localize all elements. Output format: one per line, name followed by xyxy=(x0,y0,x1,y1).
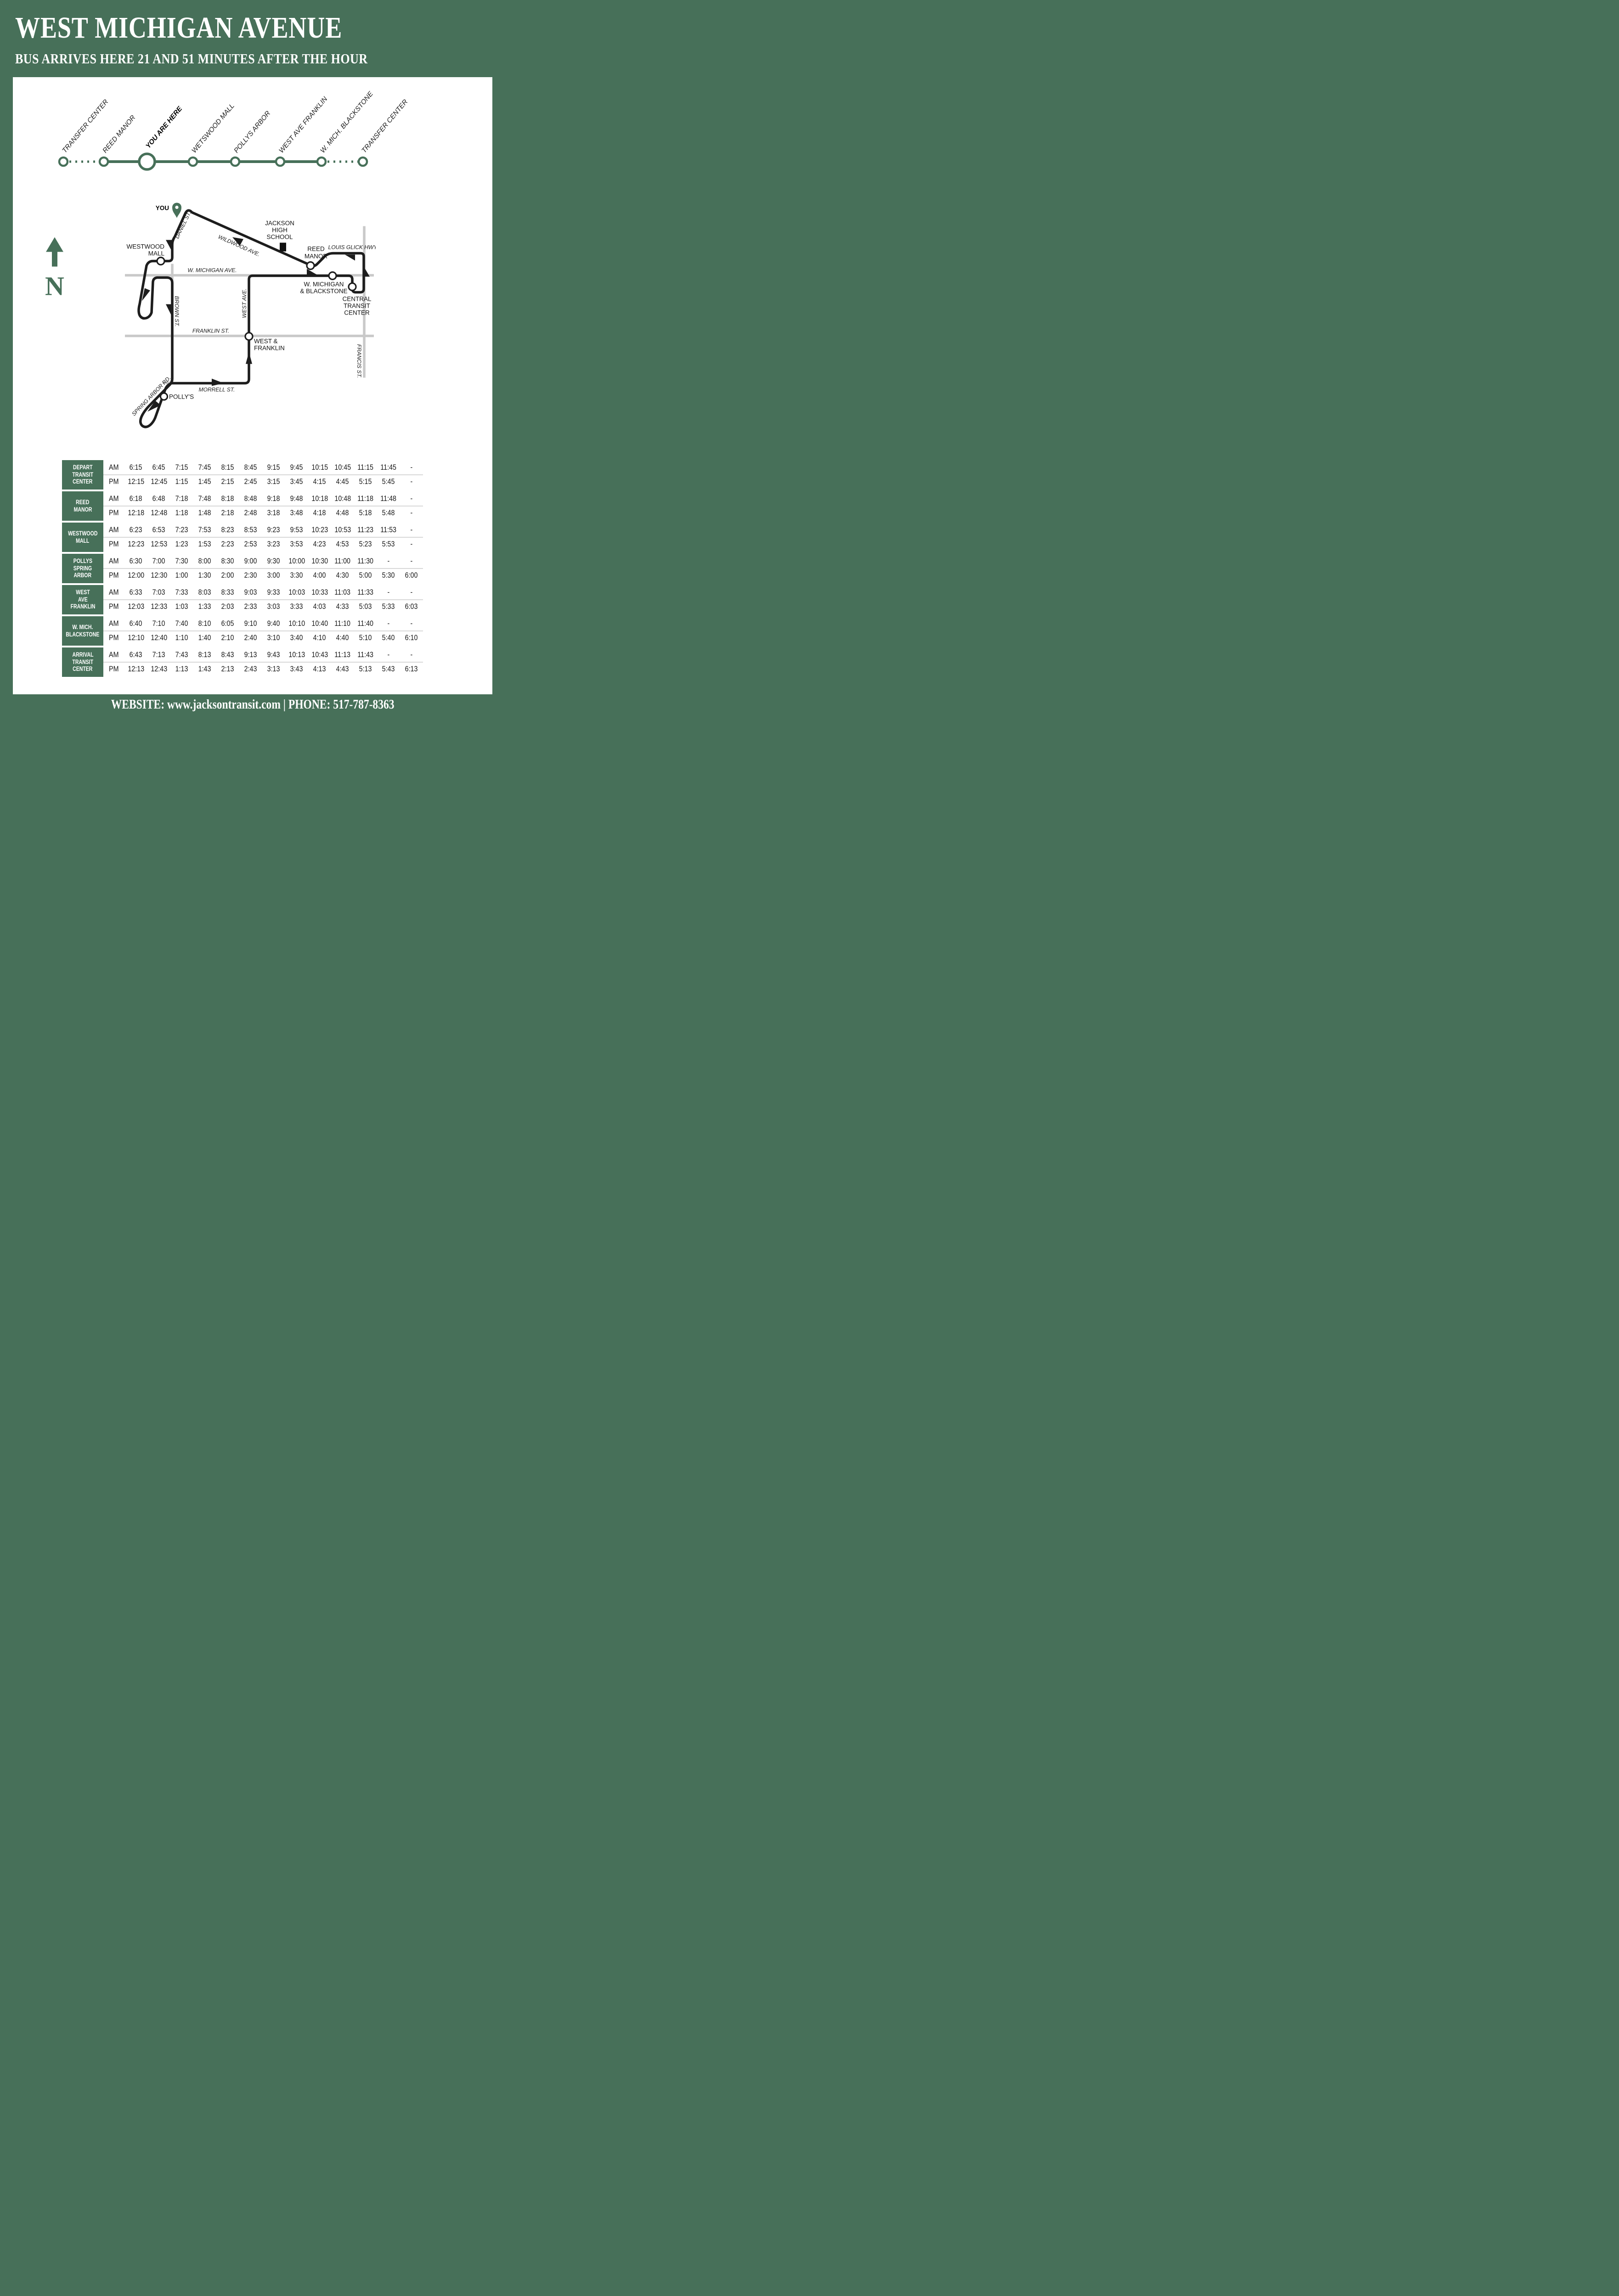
time-cell: 6:45 xyxy=(147,463,170,472)
time-cell: 2:13 xyxy=(216,664,239,674)
stop-wmich-blackstone xyxy=(329,272,336,280)
time-cell: 7:45 xyxy=(193,463,216,472)
period-label: PM xyxy=(103,664,124,674)
louis-glick-label: LOUIS GLICK HWY. xyxy=(328,244,376,251)
west-ave-label: WEST AVE. xyxy=(241,288,248,318)
arrow-daniel-south-icon xyxy=(166,240,172,252)
time-cell: 6:15 xyxy=(124,463,147,472)
west-franklin-label: FRANKLIN xyxy=(254,345,285,352)
time-cell: 10:00 xyxy=(285,557,308,566)
westwood-mall-label: MALL xyxy=(148,250,165,257)
time-cell: 5:30 xyxy=(377,571,400,580)
time-cell: 10:03 xyxy=(285,588,308,597)
time-cell: - xyxy=(377,619,400,628)
time-cell: 6:13 xyxy=(400,664,423,674)
time-cell: 8:30 xyxy=(216,557,239,566)
time-cell: 12:03 xyxy=(124,602,147,611)
time-cell: 3:45 xyxy=(285,477,308,486)
diagram-stop-label: YOU ARE HERE xyxy=(144,105,184,150)
time-cell: 7:48 xyxy=(193,494,216,503)
time-cell: 2:03 xyxy=(216,602,239,611)
time-cell: 3:33 xyxy=(285,602,308,611)
time-cell: 11:53 xyxy=(377,525,400,535)
time-cell: 5:13 xyxy=(354,664,377,674)
time-cell: 8:33 xyxy=(216,588,239,597)
am-pm-divider xyxy=(103,506,423,506)
time-cell: 11:45 xyxy=(377,463,400,472)
time-cell: 10:13 xyxy=(285,650,308,659)
time-cell: 2:30 xyxy=(239,571,262,580)
timetable-row-group: W. MICH.BLACKSTONEAM6:407:107:408:106:05… xyxy=(62,617,475,644)
time-cell: 7:23 xyxy=(170,525,193,535)
time-cell: 7:13 xyxy=(147,650,170,659)
time-cell: 9:00 xyxy=(239,557,262,566)
time-cell: 6:03 xyxy=(400,602,423,611)
stop-pollys xyxy=(161,393,168,400)
time-cell: 8:18 xyxy=(216,494,239,503)
brown-st-label: BROWN ST. xyxy=(174,296,180,327)
time-cell: 3:30 xyxy=(285,571,308,580)
time-cell: 4:33 xyxy=(331,602,354,611)
timetable: DEPARTTRANSITCENTERAM6:156:457:157:458:1… xyxy=(62,461,475,680)
time-cell: 8:10 xyxy=(193,619,216,628)
period-label: AM xyxy=(103,557,124,566)
time-cell: 3:48 xyxy=(285,508,308,518)
time-cell: - xyxy=(400,619,423,628)
time-cell: 9:18 xyxy=(262,494,285,503)
time-cell: 2:00 xyxy=(216,571,239,580)
timetable-row-group: DEPARTTRANSITCENTERAM6:156:457:157:458:1… xyxy=(62,461,475,488)
arrow-michigan-east-icon xyxy=(307,269,319,276)
time-cell: 1:13 xyxy=(170,664,193,674)
time-cell: 11:40 xyxy=(354,619,377,628)
time-cell: 2:33 xyxy=(239,602,262,611)
timetable-row-group: WESTAVEFRANKLINAM6:337:037:338:038:339:0… xyxy=(62,586,475,613)
time-cell: 9:30 xyxy=(262,557,285,566)
time-cell: 1:33 xyxy=(193,602,216,611)
time-cell: 2:43 xyxy=(239,664,262,674)
time-cell: 9:40 xyxy=(262,619,285,628)
time-cell: 4:13 xyxy=(308,664,331,674)
time-cell: 9:15 xyxy=(262,463,285,472)
time-cell: 9:48 xyxy=(285,494,308,503)
time-cell: 11:48 xyxy=(377,494,400,503)
diagram-stop-label: TRANSFER CENTER xyxy=(61,98,110,154)
time-cell: 8:43 xyxy=(216,650,239,659)
am-pm-divider xyxy=(103,568,423,569)
time-cell: 12:18 xyxy=(124,508,147,518)
timetable-row-group: REEDMANORAM6:186:487:187:488:188:489:189… xyxy=(62,492,475,519)
time-cell: 10:30 xyxy=(308,557,331,566)
website-url: www.jacksontransit.com xyxy=(167,698,281,712)
central-transit-label: TRANSIT xyxy=(344,303,370,310)
time-cell: 8:53 xyxy=(239,525,262,535)
time-cell: 8:23 xyxy=(216,525,239,535)
page-subtitle: BUS ARRIVES HERE 21 AND 51 MINUTES AFTER… xyxy=(15,51,367,66)
time-cell: 4:48 xyxy=(331,508,354,518)
wildwood-ave-label: WILDWOOD AVE. xyxy=(217,233,261,258)
time-cell: 6:23 xyxy=(124,525,147,535)
pollys-label: POLLY'S xyxy=(169,394,194,400)
time-cell: 7:53 xyxy=(193,525,216,535)
period-label: AM xyxy=(103,494,124,503)
time-cell: 10:43 xyxy=(308,650,331,659)
time-cell: - xyxy=(400,463,423,472)
time-cell: 12:33 xyxy=(147,602,170,611)
jackson-high-school-marker xyxy=(280,243,286,252)
time-cell: 11:10 xyxy=(331,619,354,628)
time-cell: 6:00 xyxy=(400,571,423,580)
you-pin-icon xyxy=(172,203,181,218)
time-cell: 5:15 xyxy=(354,477,377,486)
time-cell: 9:33 xyxy=(262,588,285,597)
time-cell: 6:53 xyxy=(147,525,170,535)
time-cell: 11:03 xyxy=(331,588,354,597)
am-pm-divider xyxy=(103,662,423,663)
time-cell: 10:48 xyxy=(331,494,354,503)
time-cell: 4:00 xyxy=(308,571,331,580)
time-cell: 5:18 xyxy=(354,508,377,518)
time-cell: 2:48 xyxy=(239,508,262,518)
time-cell: - xyxy=(377,588,400,597)
time-cell: 12:30 xyxy=(147,571,170,580)
period-label: PM xyxy=(103,477,124,486)
time-cell: 9:13 xyxy=(239,650,262,659)
period-label: PM xyxy=(103,602,124,611)
time-cell: 3:03 xyxy=(262,602,285,611)
time-cell: 3:15 xyxy=(262,477,285,486)
timetable-row-group: POLLYSSPRINGARBORAM6:307:007:308:008:309… xyxy=(62,555,475,582)
you-label: YOU xyxy=(156,205,169,212)
time-cell: 10:53 xyxy=(331,525,354,535)
time-cell: 1:00 xyxy=(170,571,193,580)
diagram-stop-transfer-center xyxy=(59,158,68,166)
time-cell: 1:45 xyxy=(193,477,216,486)
time-cell: 12:10 xyxy=(124,633,147,642)
time-cell: 10:10 xyxy=(285,619,308,628)
time-cell: 4:23 xyxy=(308,540,331,549)
diagram-stop-label: REED MANOR xyxy=(101,114,137,155)
time-cell: 3:13 xyxy=(262,664,285,674)
time-cell: 1:03 xyxy=(170,602,193,611)
time-cell: 5:43 xyxy=(377,664,400,674)
time-cell: 7:40 xyxy=(170,619,193,628)
time-cell: - xyxy=(400,540,423,549)
time-cell: 2:53 xyxy=(239,540,262,549)
period-label: PM xyxy=(103,508,124,518)
am-pm-divider xyxy=(103,474,423,475)
west-franklin-label: WEST & xyxy=(254,338,278,345)
time-cell: 1:18 xyxy=(170,508,193,518)
route-map: N xyxy=(13,198,376,451)
time-cell: 2:18 xyxy=(216,508,239,518)
time-cell: 1:30 xyxy=(193,571,216,580)
time-cell: 9:43 xyxy=(262,650,285,659)
time-cell: 5:03 xyxy=(354,602,377,611)
stop-reed-manor xyxy=(307,262,314,270)
time-cell: - xyxy=(400,588,423,597)
time-cell: 11:15 xyxy=(354,463,377,472)
time-cell: 5:10 xyxy=(354,633,377,642)
diagram-stop-pollys-arbor xyxy=(231,158,239,166)
time-cell: 4:53 xyxy=(331,540,354,549)
time-cell: 12:23 xyxy=(124,540,147,549)
stop-westwood-mall xyxy=(157,258,164,265)
time-cell: 12:40 xyxy=(147,633,170,642)
time-cell: 7:18 xyxy=(170,494,193,503)
diagram-stop-you-are-here xyxy=(139,154,155,169)
period-label: AM xyxy=(103,463,124,472)
time-cell: 3:00 xyxy=(262,571,285,580)
period-label: AM xyxy=(103,588,124,597)
time-cell: 6:30 xyxy=(124,557,147,566)
period-label: AM xyxy=(103,619,124,628)
page-header: WEST MICHIGAN AVENUE BUS ARRIVES HERE 21… xyxy=(15,13,435,66)
time-cell: 2:40 xyxy=(239,633,262,642)
time-cell: 10:45 xyxy=(331,463,354,472)
time-cell: 1:53 xyxy=(193,540,216,549)
time-cell: - xyxy=(400,525,423,535)
time-cell: 12:00 xyxy=(124,571,147,580)
time-cell: - xyxy=(400,557,423,566)
diagram-stop-label: POLLYS ARBOR xyxy=(232,109,272,154)
diagram-stop-label: WETSWOOD MALL xyxy=(190,102,236,154)
time-cell: 2:10 xyxy=(216,633,239,642)
period-label: AM xyxy=(103,525,124,535)
time-cell: 9:10 xyxy=(239,619,262,628)
diagram-stop-label: WEST AVE FRANKLIN xyxy=(277,95,329,154)
time-cell: 3:40 xyxy=(285,633,308,642)
time-cell: 4:40 xyxy=(331,633,354,642)
time-cell: 4:10 xyxy=(308,633,331,642)
jackson-hs-label: HIGH xyxy=(272,227,288,234)
time-cell: 11:18 xyxy=(354,494,377,503)
time-cell: 8:15 xyxy=(216,463,239,472)
time-cell: 3:10 xyxy=(262,633,285,642)
timetable-row-label: WESTAVEFRANKLIN xyxy=(62,585,103,614)
time-cell: - xyxy=(377,650,400,659)
time-cell: 7:43 xyxy=(170,650,193,659)
time-cell: 9:45 xyxy=(285,463,308,472)
period-label: PM xyxy=(103,540,124,549)
time-cell: 7:15 xyxy=(170,463,193,472)
time-cell: 1:40 xyxy=(193,633,216,642)
timetable-row-label: W. MICH.BLACKSTONE xyxy=(62,616,103,646)
wmich-blackstone-label: & BLACKSTONE xyxy=(300,288,347,295)
time-cell: 11:00 xyxy=(331,557,354,566)
reed-manor-label: REED xyxy=(307,246,325,253)
page-footer: WEBSITE: www.jacksontransit.com | PHONE:… xyxy=(0,695,505,720)
time-cell: 4:03 xyxy=(308,602,331,611)
time-cell: 5:23 xyxy=(354,540,377,549)
time-cell: 7:33 xyxy=(170,588,193,597)
website-label: WEBSITE: xyxy=(111,698,164,712)
page-title: WEST MICHIGAN AVENUE xyxy=(15,13,342,43)
time-cell: 12:43 xyxy=(147,664,170,674)
time-cell: 4:18 xyxy=(308,508,331,518)
time-cell: 1:23 xyxy=(170,540,193,549)
time-cell: 4:30 xyxy=(331,571,354,580)
time-cell: 5:48 xyxy=(377,508,400,518)
timetable-row-group: WESTWOODMALLAM6:236:537:237:538:238:539:… xyxy=(62,523,475,551)
time-cell: 10:18 xyxy=(308,494,331,503)
arrow-brown-south-icon xyxy=(166,304,172,317)
reed-manor-label: MANOR xyxy=(305,253,328,260)
phone-number: 517-787-8363 xyxy=(333,698,394,712)
time-cell: 3:23 xyxy=(262,540,285,549)
time-cell: 11:43 xyxy=(354,650,377,659)
arrow-louisglick-west-icon xyxy=(345,255,355,261)
timetable-row-group: ARRIVALTRANSITCENTERAM6:437:137:438:138:… xyxy=(62,648,475,675)
period-label: PM xyxy=(103,633,124,642)
time-cell: 6:43 xyxy=(124,650,147,659)
compass-label: N xyxy=(45,271,64,301)
time-cell: 7:30 xyxy=(170,557,193,566)
time-cell: 8:45 xyxy=(239,463,262,472)
time-cell: 3:53 xyxy=(285,540,308,549)
diagram-stop-west-ave-franklin xyxy=(276,158,284,166)
time-cell: 6:33 xyxy=(124,588,147,597)
time-cell: 8:48 xyxy=(239,494,262,503)
footer-separator: | xyxy=(283,698,286,712)
time-cell: 5:40 xyxy=(377,633,400,642)
time-cell: 1:48 xyxy=(193,508,216,518)
franklin-st-label: FRANKLIN ST. xyxy=(192,328,229,334)
time-cell: 9:23 xyxy=(262,525,285,535)
w-michigan-ave-label: W. MICHIGAN AVE. xyxy=(187,267,237,274)
time-cell: - xyxy=(377,557,400,566)
time-cell: 10:40 xyxy=(308,619,331,628)
time-cell: 4:15 xyxy=(308,477,331,486)
time-cell: 11:23 xyxy=(354,525,377,535)
time-cell: 1:15 xyxy=(170,477,193,486)
time-cell: 12:15 xyxy=(124,477,147,486)
diagram-stop-reed-manor xyxy=(100,158,108,166)
diagram-stop-label: TRANSFER CENTER xyxy=(360,98,409,154)
time-cell: 11:33 xyxy=(354,588,377,597)
time-cell: 10:23 xyxy=(308,525,331,535)
time-cell: 5:45 xyxy=(377,477,400,486)
timetable-row-label: POLLYSSPRINGARBOR xyxy=(62,554,103,583)
time-cell: 7:00 xyxy=(147,557,170,566)
morrell-st-label: MORRELL ST. xyxy=(199,387,235,393)
arrow-westave-north-icon xyxy=(246,352,252,364)
time-cell: 6:18 xyxy=(124,494,147,503)
content-card: TRANSFER CENTERREED MANORYOU ARE HEREWET… xyxy=(13,77,492,694)
time-cell: 11:13 xyxy=(331,650,354,659)
jackson-hs-label: JACKSON xyxy=(265,220,294,227)
time-cell: 5:33 xyxy=(377,602,400,611)
diagram-stop-wetswood-mall xyxy=(189,158,197,166)
time-cell: 1:43 xyxy=(193,664,216,674)
time-cell: 2:23 xyxy=(216,540,239,549)
time-cell: 5:00 xyxy=(354,571,377,580)
time-cell: 10:33 xyxy=(308,588,331,597)
time-cell: 8:00 xyxy=(193,557,216,566)
time-cell: 6:48 xyxy=(147,494,170,503)
time-cell: 6:10 xyxy=(400,633,423,642)
stop-west-franklin xyxy=(245,333,253,340)
westwood-mall-label: WESTWOOD xyxy=(127,243,165,250)
wmich-blackstone-label: W. MICHIGAN xyxy=(304,281,344,288)
time-cell: 4:43 xyxy=(331,664,354,674)
diagram-stop-transfer-center xyxy=(359,158,367,166)
jackson-hs-label: SCHOOL xyxy=(266,234,293,241)
time-cell: - xyxy=(400,494,423,503)
time-cell: 11:30 xyxy=(354,557,377,566)
timetable-row-label: WESTWOODMALL xyxy=(62,523,103,552)
timetable-row-label: REEDMANOR xyxy=(62,491,103,521)
time-cell: 7:03 xyxy=(147,588,170,597)
stop-central-transit-center xyxy=(349,283,356,291)
time-cell: 8:13 xyxy=(193,650,216,659)
time-cell: 10:15 xyxy=(308,463,331,472)
time-cell: 7:10 xyxy=(147,619,170,628)
time-cell: 12:45 xyxy=(147,477,170,486)
time-cell: 12:48 xyxy=(147,508,170,518)
time-cell: 6:05 xyxy=(216,619,239,628)
time-cell: 12:53 xyxy=(147,540,170,549)
time-cell: 1:10 xyxy=(170,633,193,642)
route-line-diagram: TRANSFER CENTERREED MANORYOU ARE HEREWET… xyxy=(13,80,492,198)
central-transit-label: CENTER xyxy=(344,310,370,316)
timetable-row-label: ARRIVALTRANSITCENTER xyxy=(62,647,103,677)
time-cell: 8:03 xyxy=(193,588,216,597)
central-transit-label: CENTRAL xyxy=(342,296,372,303)
map-stops xyxy=(157,258,356,400)
am-pm-divider xyxy=(103,537,423,538)
time-cell: - xyxy=(400,650,423,659)
timetable-row-label: DEPARTTRANSITCENTER xyxy=(62,460,103,490)
am-pm-divider xyxy=(103,630,423,631)
north-arrow-icon: N xyxy=(45,237,64,301)
time-cell: 12:13 xyxy=(124,664,147,674)
francis-st-label: FRANCIS ST. xyxy=(356,344,362,378)
period-label: AM xyxy=(103,650,124,659)
time-cell: - xyxy=(400,508,423,518)
am-pm-divider xyxy=(103,599,423,600)
time-cell: - xyxy=(400,477,423,486)
period-label: PM xyxy=(103,571,124,580)
time-cell: 4:45 xyxy=(331,477,354,486)
time-cell: 9:53 xyxy=(285,525,308,535)
phone-label: PHONE: xyxy=(288,698,330,712)
diagram-stop-w-mich-blackstone xyxy=(317,158,326,166)
time-cell: 2:15 xyxy=(216,477,239,486)
time-cell: 3:43 xyxy=(285,664,308,674)
time-cell: 9:03 xyxy=(239,588,262,597)
time-cell: 6:40 xyxy=(124,619,147,628)
time-cell: 2:45 xyxy=(239,477,262,486)
time-cell: 5:53 xyxy=(377,540,400,549)
time-cell: 3:18 xyxy=(262,508,285,518)
